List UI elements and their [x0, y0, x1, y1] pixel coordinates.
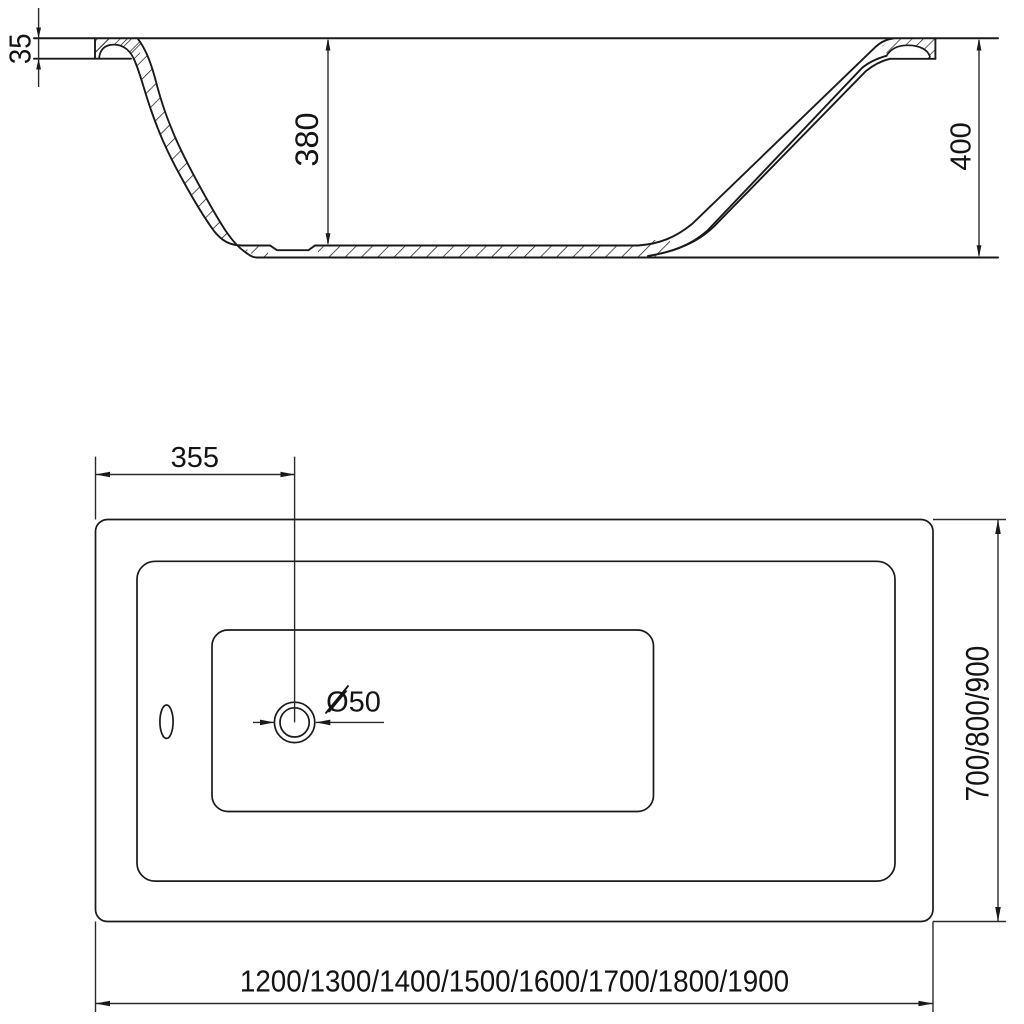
svg-text:355: 355 [171, 442, 219, 474]
svg-text:700/800/900: 700/800/900 [961, 646, 996, 802]
svg-text:400: 400 [946, 122, 978, 170]
svg-text:380: 380 [289, 112, 325, 166]
svg-text:35: 35 [4, 33, 38, 64]
svg-text:1200/1300/1400/1500/1600/1700/: 1200/1300/1400/1500/1600/1700/1800/1900 [240, 965, 789, 998]
